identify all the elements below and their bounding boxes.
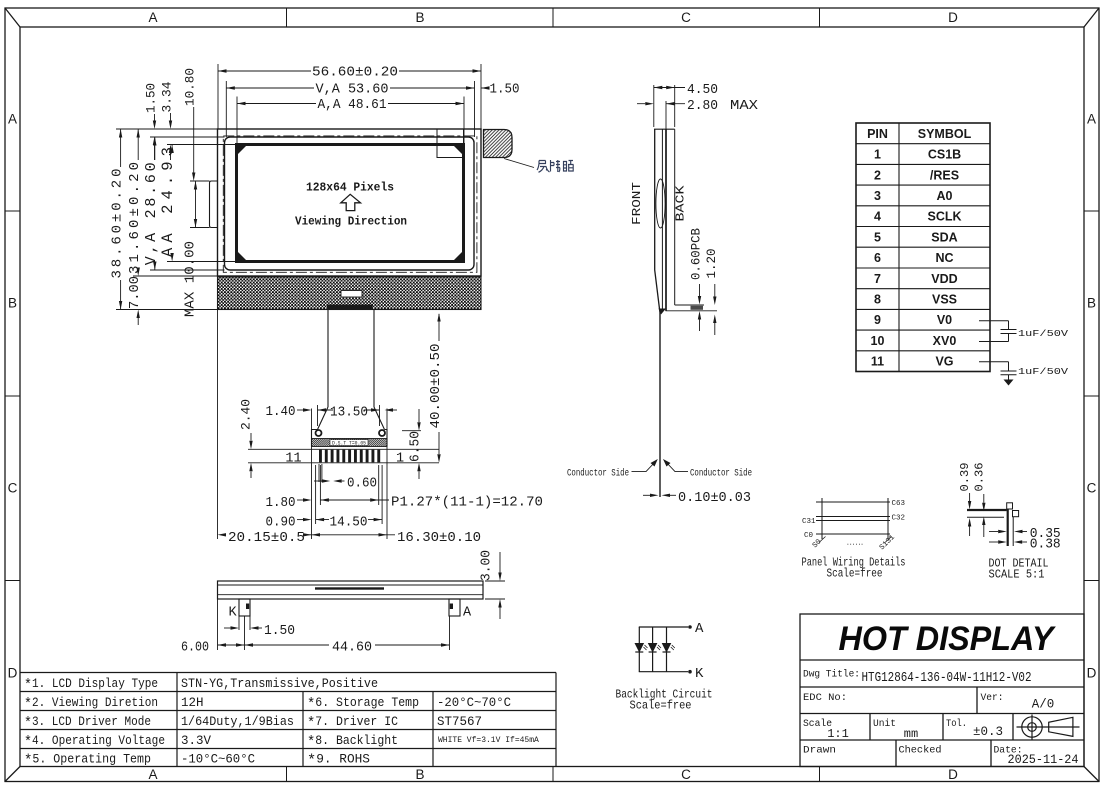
svg-text:NC: NC — [935, 251, 953, 265]
svg-text:40.00±0.50: 40.00±0.50 — [429, 344, 444, 429]
svg-text:0.90: 0.90 — [266, 516, 296, 531]
svg-text:/RES: /RES — [930, 168, 959, 182]
svg-text:SCLK: SCLK — [927, 210, 961, 224]
svg-text:VG: VG — [935, 355, 953, 369]
svg-text:8: 8 — [874, 293, 881, 307]
svg-text:3.00: 3.00 — [480, 550, 495, 581]
svg-text:B: B — [8, 296, 17, 311]
svg-text:Ver:: Ver: — [981, 692, 1004, 704]
svg-text:Unit: Unit — [873, 718, 896, 730]
svg-text:SDA: SDA — [931, 230, 957, 244]
svg-text:A/0: A/0 — [1032, 698, 1055, 712]
svg-text:2.80: 2.80 — [687, 99, 718, 114]
svg-text:VSS: VSS — [932, 293, 957, 307]
svg-text:D.S.T T=0.05: D.S.T T=0.05 — [332, 440, 366, 446]
svg-text:12H: 12H — [181, 696, 204, 710]
svg-text:56.60±0.20: 56.60±0.20 — [312, 66, 398, 81]
svg-text:HTG12864-136-04W-11H12-V02: HTG12864-136-04W-11H12-V02 — [862, 670, 1032, 686]
svg-text:C: C — [1087, 481, 1097, 496]
svg-text:9: 9 — [874, 313, 881, 327]
svg-text:Conductor Side: Conductor Side — [567, 468, 629, 480]
svg-text:SYMBOL: SYMBOL — [918, 127, 972, 141]
svg-text:1.50: 1.50 — [264, 624, 295, 639]
svg-text:Tol.: Tol. — [946, 718, 967, 730]
svg-text:1.20: 1.20 — [705, 249, 719, 279]
svg-text:7.00: 7.00 — [128, 276, 143, 309]
svg-text:A: A — [463, 606, 472, 621]
svg-text:V,A 53.60: V,A 53.60 — [316, 83, 389, 98]
svg-text:A: A — [8, 112, 17, 127]
svg-text:16.30±0.10: 16.30±0.10 — [397, 531, 481, 546]
svg-text:P1.27*(11-1)=12.70: P1.27*(11-1)=12.70 — [391, 495, 543, 511]
svg-text:6.00: 6.00 — [181, 641, 209, 656]
svg-text:C0: C0 — [804, 532, 814, 540]
svg-text:7: 7 — [874, 272, 881, 286]
svg-text:±0.3: ±0.3 — [973, 725, 1003, 739]
svg-text:SCALE 5:1: SCALE 5:1 — [989, 568, 1045, 582]
svg-text:C: C — [8, 481, 18, 496]
svg-text:Viewing Direction: Viewing Direction — [295, 215, 407, 229]
svg-text:XV0: XV0 — [933, 334, 957, 348]
svg-text:2: 2 — [874, 168, 881, 182]
svg-text:6: 6 — [874, 251, 881, 265]
svg-text:20.15±0.5: 20.15±0.5 — [228, 531, 305, 546]
svg-text:Dwg Title:: Dwg Title: — [803, 669, 860, 681]
svg-text:V,A 28.60: V,A 28.60 — [143, 162, 160, 265]
svg-text:Checked: Checked — [899, 745, 942, 757]
svg-text:1.50: 1.50 — [490, 83, 520, 98]
svg-text:BACK: BACK — [675, 185, 688, 221]
svg-text:A: A — [1087, 112, 1096, 127]
svg-text:-20°C~70°C: -20°C~70°C — [437, 696, 511, 710]
svg-text:A: A — [148, 767, 157, 782]
svg-text:10.80: 10.80 — [184, 68, 198, 106]
svg-text:WHITE Vf=3.1V If=45mA: WHITE Vf=3.1V If=45mA — [438, 736, 539, 745]
svg-text:C: C — [681, 767, 691, 782]
svg-text:1.50: 1.50 — [145, 83, 159, 113]
svg-text:K: K — [695, 666, 704, 682]
svg-text:1uF/50V: 1uF/50V — [1018, 329, 1069, 339]
svg-text:Conductor Side: Conductor Side — [690, 468, 752, 480]
svg-text:Drawn: Drawn — [803, 745, 836, 757]
svg-text:D: D — [8, 666, 18, 681]
svg-text:1/64Duty,1/9Bias: 1/64Duty,1/9Bias — [181, 715, 294, 729]
svg-text:6.50: 6.50 — [409, 431, 424, 462]
svg-text:STN-YG,Transmissive,Positive: STN-YG,Transmissive,Positive — [181, 677, 378, 691]
svg-text:2025-11-24: 2025-11-24 — [1008, 753, 1079, 767]
svg-text:3.3V: 3.3V — [181, 734, 212, 748]
svg-text:44.60: 44.60 — [332, 641, 372, 656]
svg-text:MAX 10.00: MAX 10.00 — [184, 241, 199, 317]
svg-text:0.36: 0.36 — [972, 463, 986, 492]
svg-text:2.40: 2.40 — [240, 399, 254, 430]
svg-text:-10°C~60°C: -10°C~60°C — [181, 753, 255, 767]
svg-text:3: 3 — [874, 189, 881, 203]
svg-text:D: D — [948, 10, 958, 25]
svg-text:10: 10 — [871, 334, 885, 348]
svg-text:VDD: VDD — [931, 272, 957, 286]
svg-text:D: D — [948, 767, 958, 782]
svg-text:128x64 Pixels: 128x64 Pixels — [306, 181, 394, 195]
svg-text:1:1: 1:1 — [827, 727, 849, 741]
svg-text:1.80: 1.80 — [266, 496, 296, 511]
svg-text:0.60PCB: 0.60PCB — [689, 228, 703, 280]
svg-text:V0: V0 — [937, 313, 952, 327]
svg-text:FRONT: FRONT — [631, 182, 644, 225]
svg-text:1: 1 — [874, 148, 881, 162]
svg-text:Scale=free: Scale=free — [827, 567, 883, 581]
svg-text:CS1B: CS1B — [928, 148, 961, 162]
svg-text:HOT DISPLAY: HOT DISPLAY — [839, 620, 1057, 658]
svg-text:D: D — [1087, 666, 1097, 681]
svg-text:0.10±0.03: 0.10±0.03 — [678, 491, 751, 506]
svg-text:5: 5 — [874, 230, 881, 244]
svg-text:1: 1 — [396, 452, 404, 467]
svg-text:4.50: 4.50 — [687, 83, 718, 98]
svg-text:0.60: 0.60 — [347, 477, 377, 492]
svg-text:mm: mm — [904, 727, 918, 741]
svg-text:C63: C63 — [892, 500, 906, 508]
svg-text:14.50: 14.50 — [330, 516, 368, 531]
svg-text:B: B — [415, 767, 424, 782]
svg-text:A0: A0 — [937, 189, 953, 203]
svg-text:0.39: 0.39 — [958, 463, 972, 492]
svg-text:11: 11 — [285, 452, 301, 467]
svg-text:4: 4 — [874, 210, 881, 224]
svg-text:PIN: PIN — [867, 127, 888, 141]
svg-text:A: A — [695, 621, 704, 637]
svg-text:C31: C31 — [802, 518, 816, 526]
svg-text:......: ...... — [847, 538, 864, 548]
svg-text:K: K — [228, 606, 237, 621]
svg-text:A,A 48.61: A,A 48.61 — [318, 98, 387, 113]
svg-text:13.50: 13.50 — [330, 406, 368, 421]
svg-text:Scale=free: Scale=free — [630, 699, 692, 713]
svg-text:MAX: MAX — [730, 99, 758, 114]
svg-text:EDC No:: EDC No: — [803, 692, 847, 704]
svg-text:ST7567: ST7567 — [437, 715, 482, 729]
svg-text:1.40: 1.40 — [266, 405, 296, 420]
svg-text:0.38: 0.38 — [1030, 538, 1061, 553]
svg-text:11: 11 — [871, 355, 884, 369]
svg-text:C32: C32 — [892, 515, 906, 523]
svg-text:B: B — [1087, 296, 1096, 311]
svg-text:1uF/50V: 1uF/50V — [1018, 367, 1069, 377]
svg-text:A: A — [148, 10, 157, 25]
svg-text:C: C — [681, 10, 691, 25]
svg-text:B: B — [415, 10, 424, 25]
svg-text:3.34: 3.34 — [161, 82, 175, 113]
